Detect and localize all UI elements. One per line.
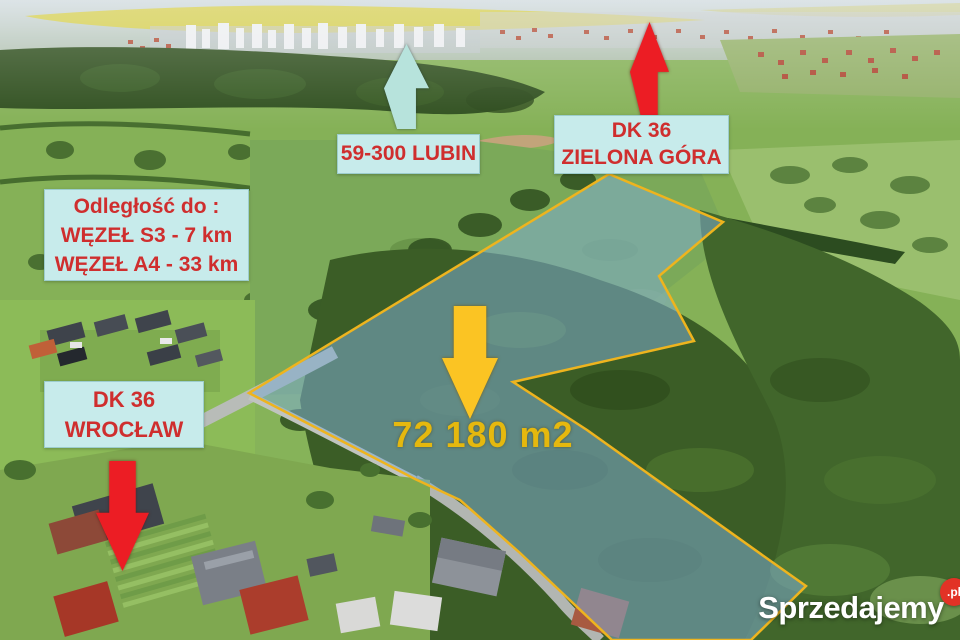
distance-a4: WĘZEŁ A4 - 33 km — [45, 250, 248, 279]
lubin-label: 59-300 LUBIN — [338, 141, 479, 168]
residential-area — [0, 440, 432, 640]
haze-overlay — [0, 0, 960, 130]
zielona-gora-route: DK 36 — [555, 118, 728, 145]
listing-image: 59-300 LUBIN DK 36 ZIELONA GÓRA Odległoś… — [0, 0, 960, 640]
zielona-gora-label-box: DK 36 ZIELONA GÓRA — [554, 115, 729, 174]
zielona-gora-city: ZIELONA GÓRA — [555, 145, 728, 172]
watermark-logo: Sprzedajemy .pl — [758, 590, 944, 626]
distance-s3: WĘZEŁ S3 - 7 km — [45, 221, 248, 250]
wroclaw-route: DK 36 — [45, 385, 203, 415]
wroclaw-city: WROCŁAW — [45, 415, 203, 445]
distance-info-box: Odległość do : WĘZEŁ S3 - 7 km WĘZEŁ A4 … — [44, 189, 249, 281]
watermark-brand: Sprzedajemy — [758, 590, 944, 625]
distance-title: Odległość do : — [45, 192, 248, 221]
lubin-label-box: 59-300 LUBIN — [337, 134, 480, 174]
watermark-pl-badge: .pl — [940, 578, 960, 606]
plot-area-label: 72 180 m2 — [378, 414, 588, 456]
wroclaw-label-box: DK 36 WROCŁAW — [44, 381, 204, 448]
